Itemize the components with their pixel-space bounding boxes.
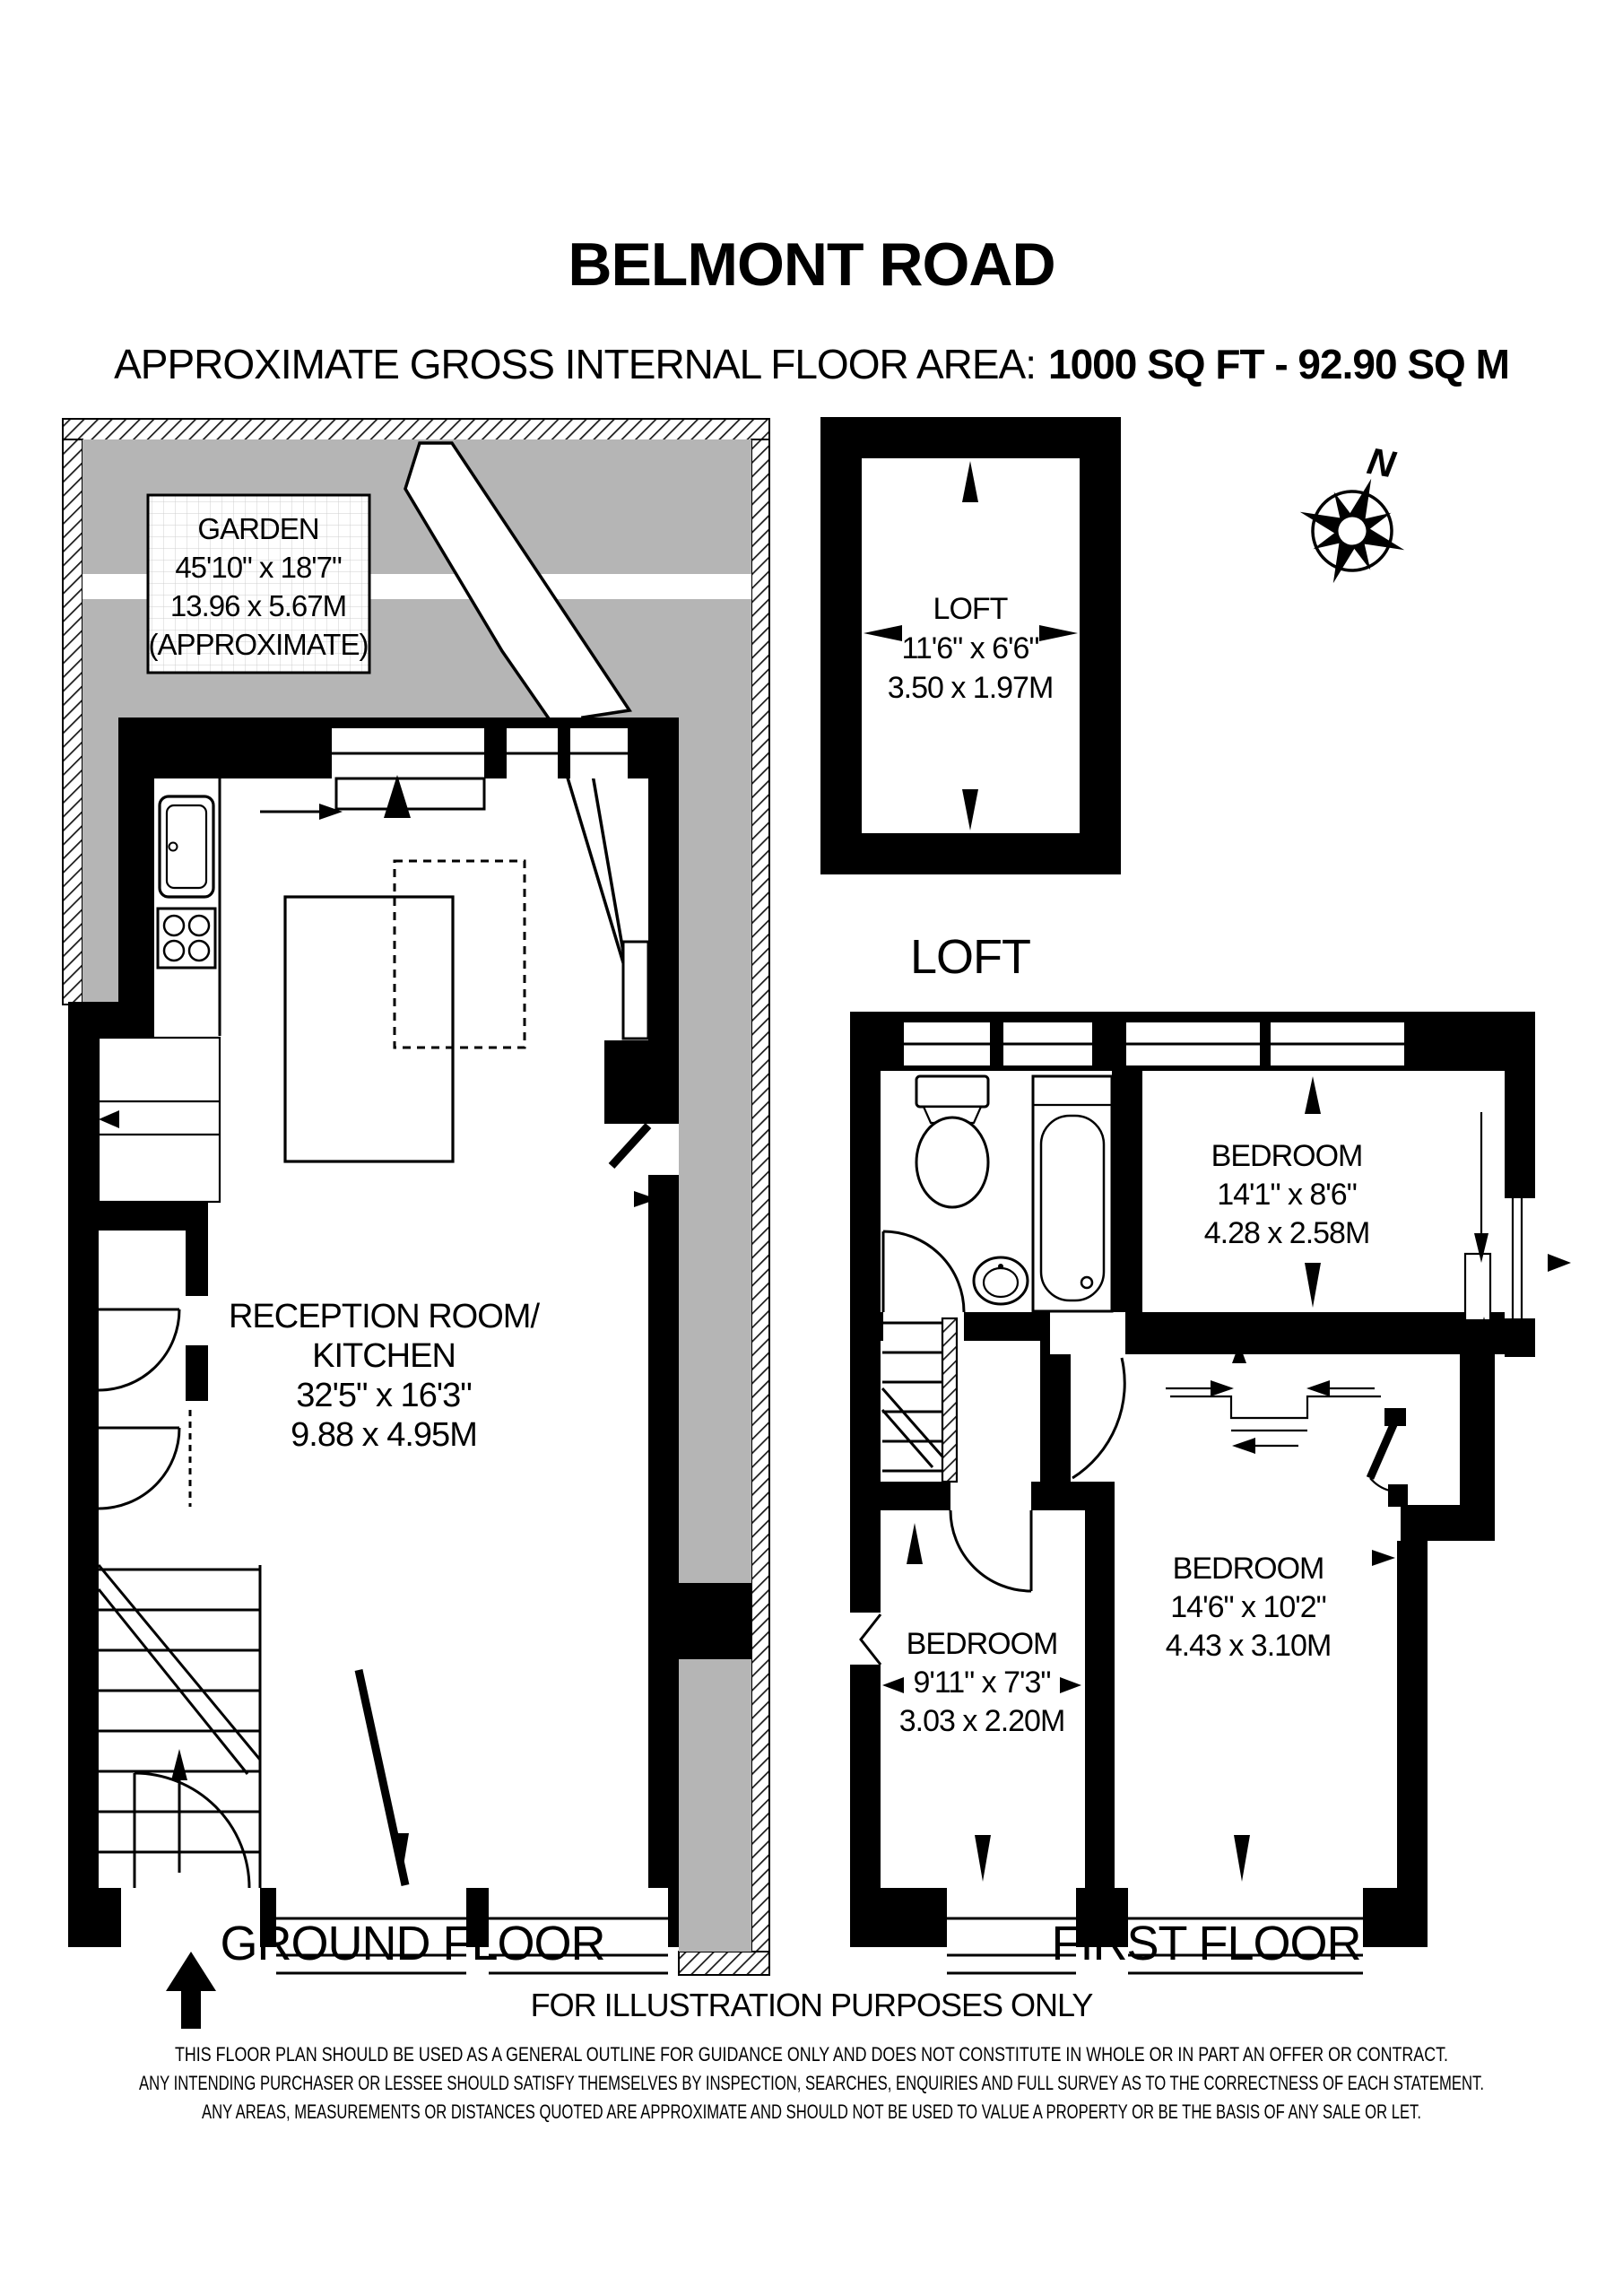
- ff-bay-right-arrow-icon: [1548, 1254, 1571, 1272]
- subtitle-prefix: APPROXIMATE GROSS INTERNAL FLOOR AREA:: [114, 341, 1036, 387]
- garden-grass-right-strip: [679, 717, 751, 1117]
- gf-left-wall: [68, 1002, 99, 1947]
- ff-bed1-up-arrow-icon: [1305, 1076, 1321, 1114]
- gf-side-door-leaf: [612, 1126, 648, 1166]
- ff-left-wall: [850, 1012, 881, 1947]
- loft-plan: LOFT 11'6" x 6'6" 3.50 x 1.97M LOFT: [820, 417, 1121, 984]
- hob-icon: [158, 909, 215, 968]
- ff-bedroom-middle-right-wall: [1397, 1541, 1428, 1888]
- bedroom-middle-label: BEDROOM 14'6" x 10'2" 4.43 x 3.10M: [1166, 1552, 1332, 1663]
- side-return-passage: [679, 1117, 751, 1952]
- bedroom-small-label: BEDROOM 9'11" x 7'3" 3.03 x 2.20M: [899, 1627, 1065, 1738]
- illustration-note: FOR ILLUSTRATION PURPOSES ONLY: [531, 1987, 1094, 2023]
- garden-dimensions-ft: 45'10" x 18'7": [175, 551, 342, 584]
- gf-alcove-doors: [99, 1309, 190, 1509]
- bedroom-small-dimensions-ft: 9'11" x 7'3": [913, 1665, 1050, 1700]
- ground-floor-caption: GROUND FLOOR: [220, 1917, 604, 1970]
- garden-label: GARDEN 45'10" x 18'7" 13.96 x 5.67M (APP…: [148, 495, 369, 673]
- gf-chimney-outrigger: [679, 1583, 751, 1659]
- compass-north-label: N: [1364, 439, 1400, 486]
- toilet-icon: [916, 1076, 988, 1207]
- gf-right-wall: [648, 717, 679, 1947]
- ff-top-windows: [904, 1022, 1404, 1065]
- ff-bed2-right-arrow-icon: [1372, 1550, 1395, 1566]
- reception-label: RECEPTION ROOM/ KITCHEN 32'5" x 16'3" 9.…: [229, 1298, 540, 1454]
- bathroom: [916, 1076, 1112, 1311]
- bedroom-middle-dimensions-m: 4.43 x 3.10M: [1166, 1629, 1332, 1663]
- gf-alcove-pier2: [186, 1345, 208, 1401]
- ff-bed2-down-arrow-icon: [1234, 1835, 1250, 1882]
- disclaimer-line-2: ANY INTENDING PURCHASER OR LESSEE SHOULD…: [139, 2072, 1484, 2094]
- floorplan-page: BELMONT ROAD APPROXIMATE GROSS INTERNAL …: [0, 0, 1623, 2296]
- kitchen-sink-icon: [160, 796, 213, 897]
- page-subtitle: APPROXIMATE GROSS INTERNAL FLOOR AREA:10…: [114, 341, 1509, 387]
- gf-right-wall-bump: [604, 1040, 679, 1124]
- gf-alcove-pier1: [186, 1231, 208, 1296]
- ff-right-arm-wall: [1401, 1505, 1495, 1541]
- garden-dimensions-m: 13.96 x 5.67M: [170, 589, 346, 622]
- bedroom-top-label: BEDROOM 14'1" x 8'6" 4.28 x 2.58M: [1204, 1139, 1370, 1250]
- floorplan-image: BELMONT ROAD APPROXIMATE GROSS INTERNAL …: [0, 0, 1623, 2296]
- reception-name-line2: KITCHEN: [312, 1337, 456, 1375]
- ff-bedroom-top-door-opening: [1050, 1312, 1125, 1354]
- gf-window-counter: [336, 778, 484, 809]
- gf-step-wall: [68, 1202, 208, 1231]
- compass-rose-icon: N: [1274, 439, 1430, 609]
- side-return-hatch-right: [751, 439, 769, 1952]
- loft-dimensions-m: 3.50 x 1.97M: [888, 671, 1054, 705]
- bedroom-top-dimensions-m: 4.28 x 2.58M: [1204, 1216, 1370, 1250]
- stairs-up-arrow-icon: [171, 1749, 187, 1780]
- ff-bed3-down-arrow-icon: [975, 1835, 991, 1882]
- bathroom-door-arc: [883, 1231, 964, 1312]
- gf-right-unit: [623, 942, 648, 1039]
- bedroom-small-dimensions-m: 3.03 x 2.20M: [899, 1704, 1065, 1738]
- loft-name: LOFT: [933, 592, 1008, 626]
- ff-bed3-right-arrow-icon: [1060, 1677, 1081, 1693]
- ff-left-window: [850, 1613, 881, 1665]
- ground-floor-plan: RECEPTION ROOM/ KITCHEN 32'5" x 16'3" 9.…: [68, 717, 751, 2029]
- ff-step: [1166, 1344, 1381, 1454]
- garden-hatch-top: [63, 419, 769, 443]
- bedroom-middle-dimensions-ft: 14'6" x 10'2": [1170, 1590, 1325, 1624]
- staircase-first: [882, 1318, 957, 1482]
- bedroom-top-name: BEDROOM: [1211, 1139, 1363, 1173]
- gf-kitchen-left-wall: [118, 717, 154, 1040]
- subtitle-value: 1000 SQ FT - 92.90 SQ M: [1048, 341, 1509, 387]
- ff-bedroom-middle-door-arc: [1072, 1358, 1124, 1478]
- bedroom-small-name: BEDROOM: [907, 1627, 1058, 1661]
- basin-icon: [974, 1257, 1028, 1304]
- bedroom-top-dimensions-ft: 14'1" x 8'6": [1217, 1178, 1357, 1212]
- disclaimer-line-3: ANY AREAS, MEASUREMENTS OR DISTANCES QUO…: [202, 2100, 1421, 2123]
- ff-right-step-wall: [1460, 1354, 1495, 1516]
- gf-pantry: [99, 1038, 220, 1202]
- reception-dimensions-m: 9.88 x 4.95M: [291, 1416, 477, 1454]
- garden-hatch-left: [63, 439, 82, 1004]
- first-floor-caption: FIRST FLOOR: [1051, 1917, 1360, 1970]
- ff-bed3-left-arrow-icon: [882, 1677, 904, 1693]
- stairs-newel-hatch: [942, 1318, 957, 1482]
- loft-dimensions-ft: 11'6" x 6'6": [901, 631, 1038, 665]
- entrance-arrow-icon: [166, 1952, 216, 2029]
- kitchen-island: [285, 897, 453, 1161]
- page-title: BELMONT ROAD: [568, 230, 1055, 299]
- reception-name-line1: RECEPTION ROOM/: [229, 1298, 540, 1335]
- bathtub-icon: [1033, 1076, 1112, 1311]
- ff-step-door: [1370, 1408, 1408, 1507]
- ff-bedroom-divider: [1085, 1510, 1115, 1888]
- side-return-hatch-cap: [679, 1952, 769, 1975]
- disclaimer-line-1: THIS FLOOR PLAN SHOULD BE USED AS A GENE…: [175, 2043, 1448, 2066]
- ff-bed3-up-arrow-icon: [907, 1523, 923, 1564]
- first-floor-plan: BEDROOM 14'1" x 8'6" 4.28 x 2.58M BEDROO…: [850, 1012, 1571, 1973]
- gf-side-door-opening: [648, 1124, 679, 1175]
- garden-note: (APPROXIMATE): [149, 628, 369, 661]
- entrance-door: [135, 1773, 249, 1888]
- ff-bedroom-small-door-arc: [950, 1510, 1031, 1591]
- ff-bathroom-divider: [1112, 1071, 1142, 1340]
- reception-dimensions-ft: 32'5" x 16'3": [296, 1377, 471, 1414]
- garden-grass-left-strip: [82, 717, 118, 1004]
- ff-landing-stub: [1040, 1354, 1071, 1482]
- ff-bedroom-small-door-opening: [950, 1482, 1031, 1510]
- staircase-ground: [99, 1565, 260, 1888]
- loft-caption: LOFT: [910, 930, 1030, 984]
- garden-name: GARDEN: [197, 512, 318, 545]
- bedroom-middle-name: BEDROOM: [1173, 1552, 1324, 1586]
- ff-bed1-down-arrow-icon: [1305, 1263, 1321, 1308]
